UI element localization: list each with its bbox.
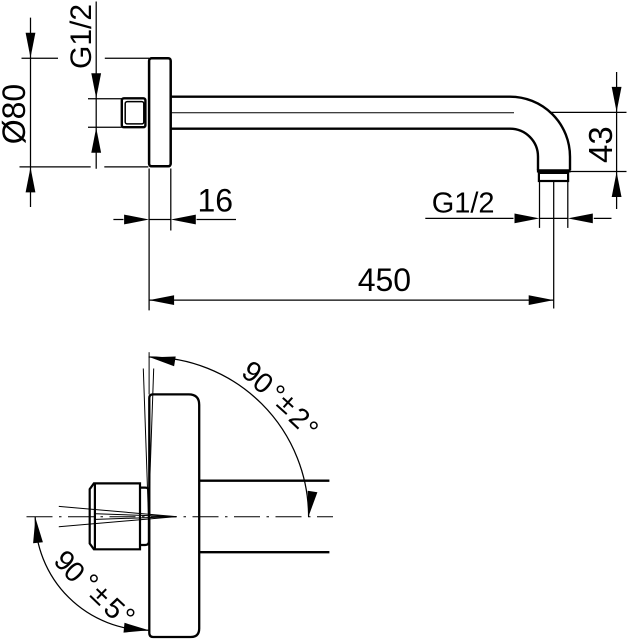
svg-text:43: 43 (582, 126, 619, 163)
svg-text:450: 450 (358, 262, 411, 298)
svg-text:16: 16 (198, 183, 234, 219)
svg-text:G1/2: G1/2 (65, 4, 98, 69)
svg-text:G1/2: G1/2 (432, 188, 495, 220)
svg-text:Ø80: Ø80 (0, 84, 32, 144)
